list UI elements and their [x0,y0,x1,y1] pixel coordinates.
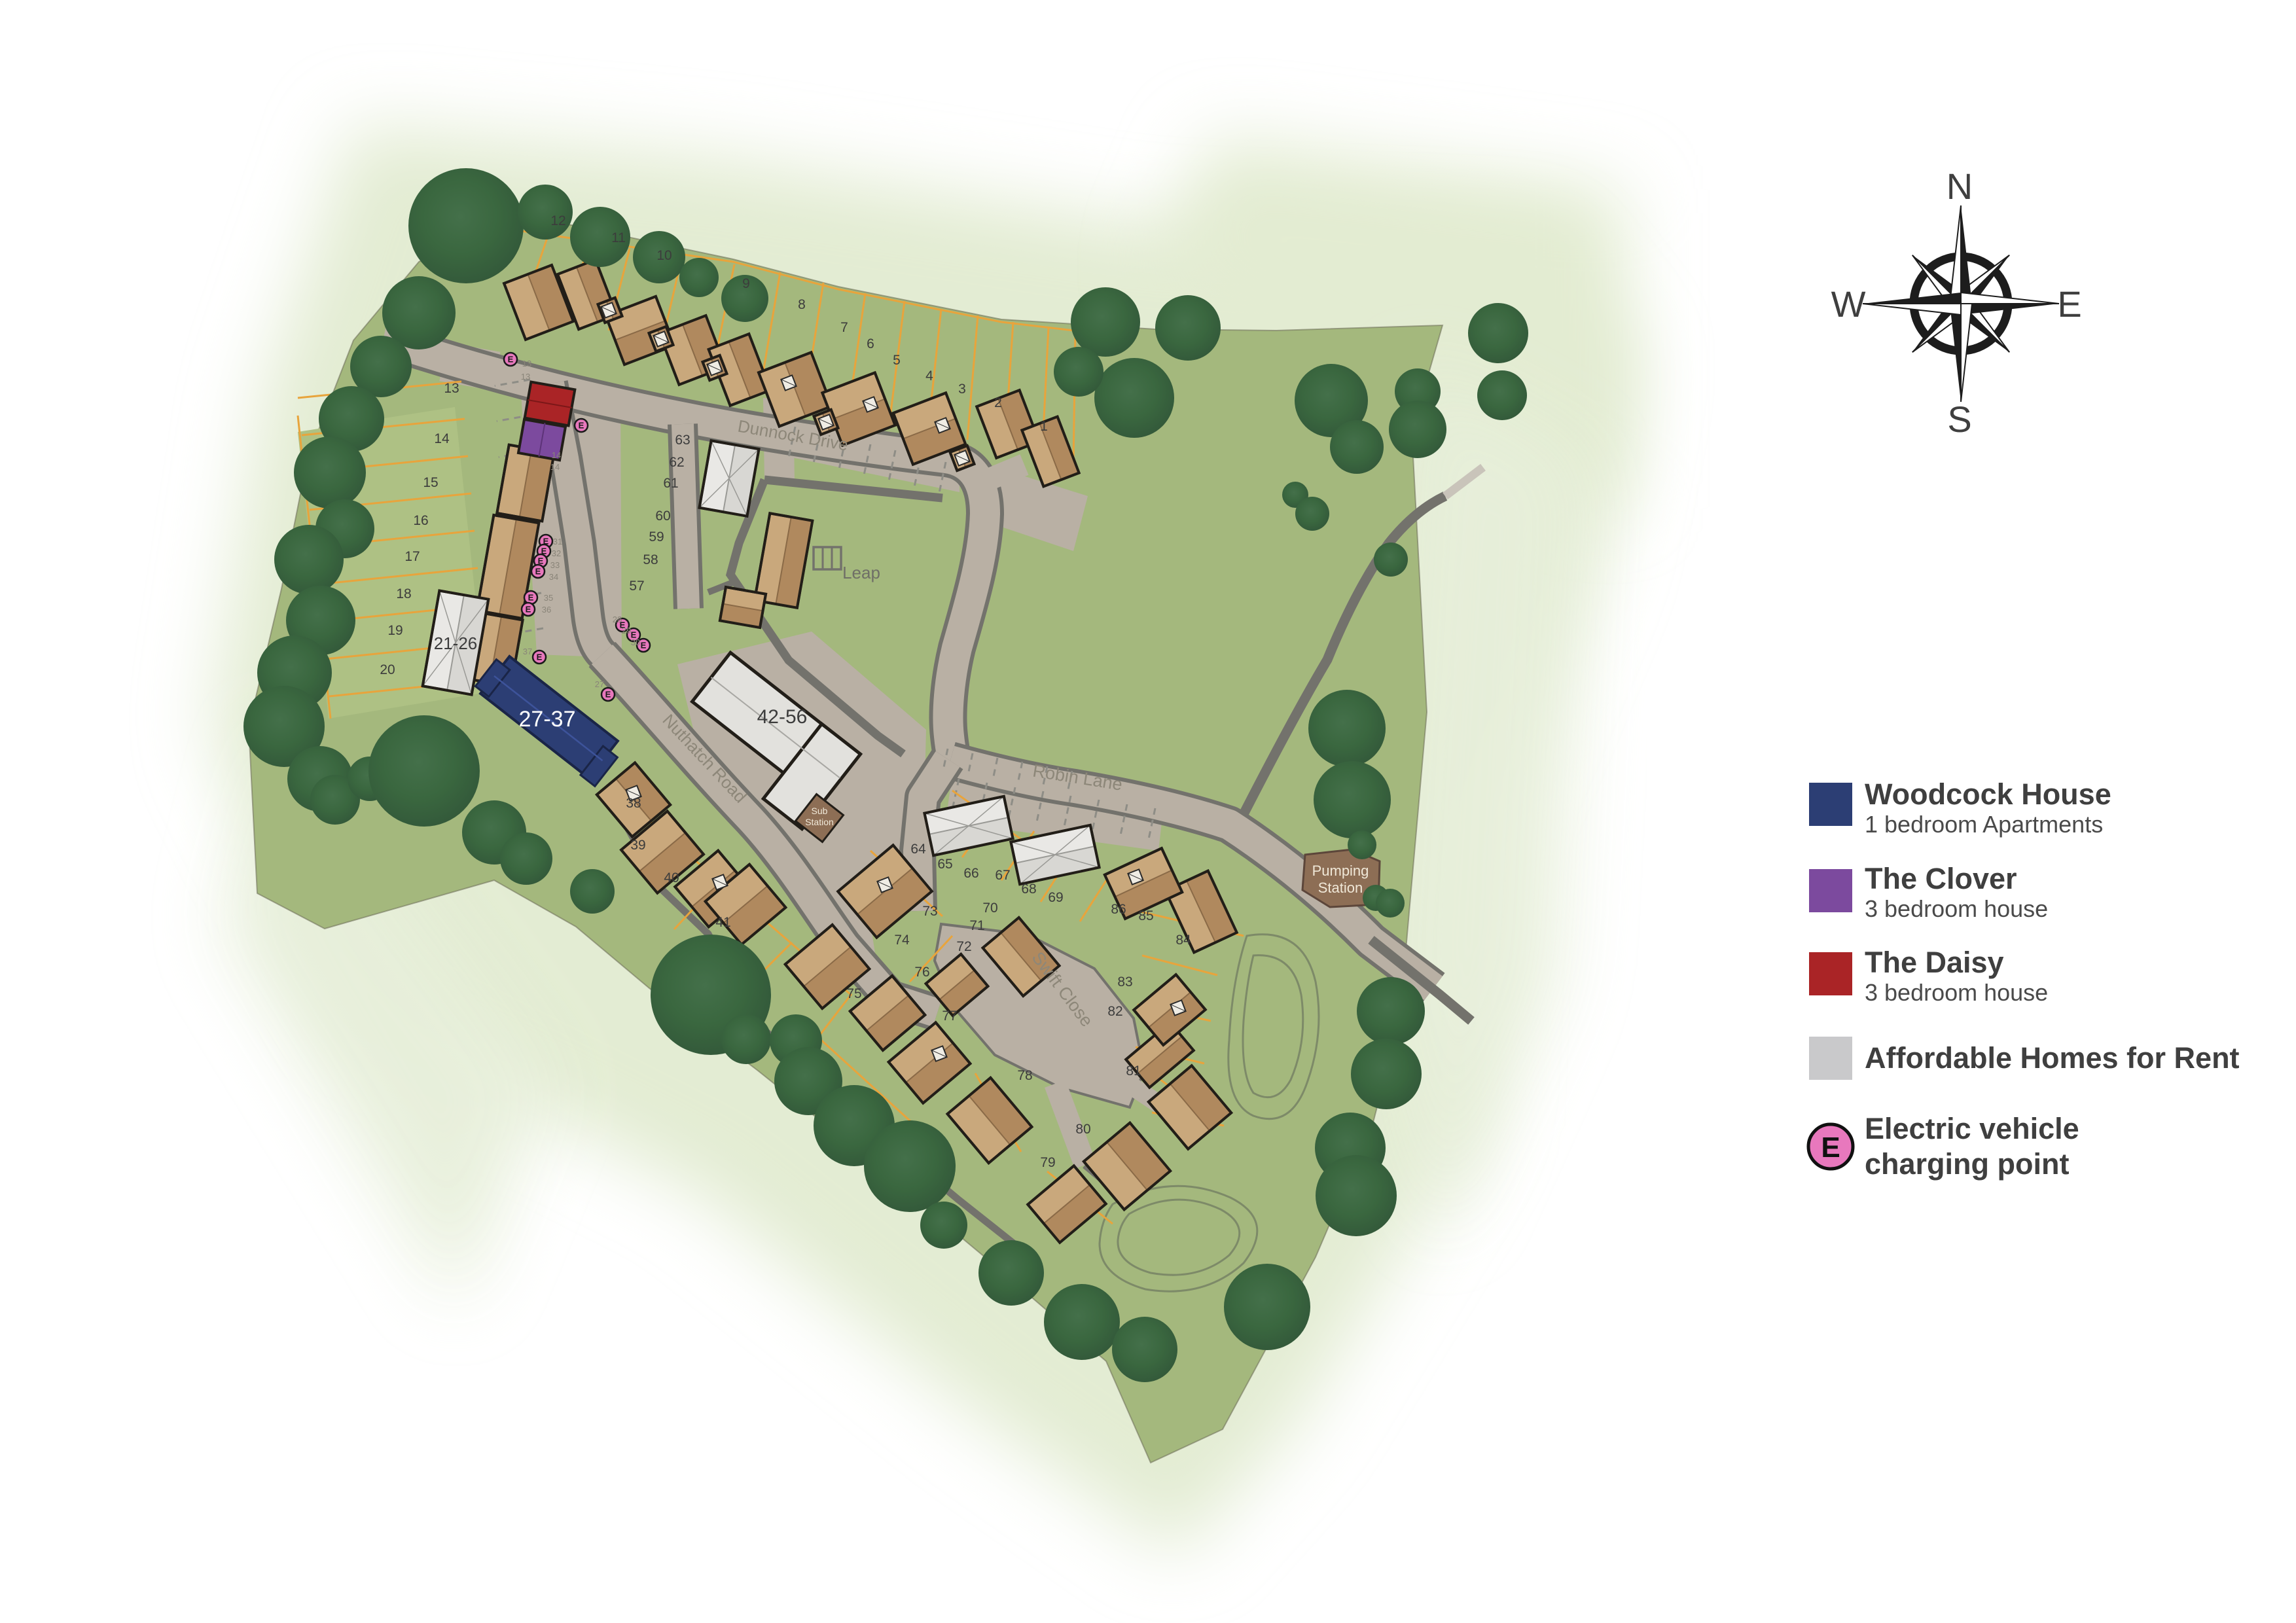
svg-text:31: 31 [553,537,562,546]
svg-text:21-26: 21-26 [434,633,478,653]
svg-text:30: 30 [631,637,640,647]
svg-text:Pumping: Pumping [1312,863,1369,879]
svg-text:35: 35 [544,593,553,603]
svg-text:4: 4 [925,368,933,383]
svg-text:5: 5 [893,353,901,368]
svg-text:62: 62 [669,455,684,470]
svg-text:E: E [535,567,541,577]
svg-text:40: 40 [664,870,679,885]
svg-text:63: 63 [675,433,690,448]
svg-text:27: 27 [595,679,604,689]
svg-text:15: 15 [423,475,438,490]
svg-text:79: 79 [1040,1155,1055,1170]
svg-text:Electric vehicle: Electric vehicle [1865,1112,2079,1145]
svg-text:3: 3 [958,382,966,397]
svg-text:E: E [641,641,647,651]
svg-text:16: 16 [413,513,428,528]
svg-text:61: 61 [663,476,678,491]
svg-text:59: 59 [649,529,664,544]
svg-text:S: S [1947,399,1971,440]
svg-text:6: 6 [867,336,874,351]
svg-text:65: 65 [937,857,952,872]
svg-text:14: 14 [434,431,450,446]
svg-text:Woodcock House: Woodcock House [1865,777,2111,811]
svg-text:42-56: 42-56 [757,706,808,728]
svg-text:34: 34 [549,572,558,582]
svg-text:E: E [2057,283,2081,325]
svg-text:58: 58 [643,552,658,567]
svg-text:11: 11 [611,230,626,245]
svg-text:N: N [1946,166,1973,207]
svg-text:36: 36 [542,605,551,615]
svg-text:9: 9 [742,276,750,291]
svg-text:74: 74 [894,933,910,948]
svg-text:14: 14 [552,450,561,460]
svg-text:Station: Station [805,817,834,827]
svg-text:68: 68 [1021,882,1036,897]
svg-text:E: E [526,605,531,615]
svg-text:E: E [579,421,584,431]
svg-text:76: 76 [914,965,929,980]
svg-text:29: 29 [622,626,631,635]
svg-text:2: 2 [994,395,1002,410]
svg-text:1 bedroom Apartments: 1 bedroom Apartments [1865,811,2103,838]
svg-text:Affordable Homes for Rent: Affordable Homes for Rent [1865,1041,2240,1075]
svg-text:41: 41 [715,915,730,930]
svg-text:13: 13 [522,359,531,368]
svg-text:charging point: charging point [1865,1147,2069,1181]
svg-text:E: E [508,355,514,365]
svg-text:Leap: Leap [842,563,880,582]
svg-text:Sub: Sub [812,806,828,816]
svg-text:32: 32 [552,548,561,558]
svg-text:E: E [537,652,543,662]
svg-text:71: 71 [969,918,984,933]
svg-text:W: W [1831,283,1866,325]
svg-text:8: 8 [798,297,806,312]
svg-text:Station: Station [1318,880,1363,896]
svg-text:85: 85 [1138,908,1153,923]
svg-text:19: 19 [387,623,403,638]
svg-text:70: 70 [982,901,997,916]
svg-text:The Clover: The Clover [1865,862,2017,895]
svg-text:81: 81 [1126,1063,1141,1079]
svg-text:67: 67 [995,868,1010,883]
svg-text:80: 80 [1075,1122,1090,1137]
svg-text:60: 60 [655,508,670,524]
svg-text:10: 10 [656,248,672,263]
svg-text:69: 69 [1048,890,1063,905]
svg-text:E: E [605,690,611,700]
svg-text:E: E [528,593,534,603]
svg-text:37: 37 [523,647,532,656]
svg-text:77: 77 [942,1008,957,1024]
svg-text:75: 75 [846,986,861,1001]
svg-text:57: 57 [629,579,644,594]
svg-text:84: 84 [1175,933,1191,948]
svg-text:39: 39 [630,838,645,853]
svg-text:E: E [1821,1132,1840,1164]
svg-text:13: 13 [521,372,530,382]
svg-text:33: 33 [550,560,560,570]
svg-text:12: 12 [550,213,565,228]
svg-text:72: 72 [956,939,971,954]
svg-text:38: 38 [626,796,641,811]
svg-text:18: 18 [396,586,411,601]
svg-text:17: 17 [404,549,420,564]
svg-text:27-37: 27-37 [519,707,576,732]
svg-text:86: 86 [1111,902,1126,917]
svg-text:82: 82 [1107,1004,1122,1019]
svg-text:7: 7 [840,320,848,335]
svg-text:20: 20 [380,662,395,677]
svg-text:14: 14 [550,462,560,472]
svg-text:13: 13 [444,381,459,396]
svg-text:The Daisy: The Daisy [1865,946,2004,979]
svg-text:3 bedroom house: 3 bedroom house [1865,979,2048,1006]
svg-text:3 bedroom house: 3 bedroom house [1865,895,2048,922]
svg-text:28: 28 [613,615,622,624]
svg-text:73: 73 [922,904,937,919]
svg-text:1: 1 [1040,419,1048,434]
svg-text:83: 83 [1117,974,1132,990]
svg-text:66: 66 [963,866,978,881]
svg-text:64: 64 [910,842,926,857]
svg-text:78: 78 [1017,1068,1032,1083]
